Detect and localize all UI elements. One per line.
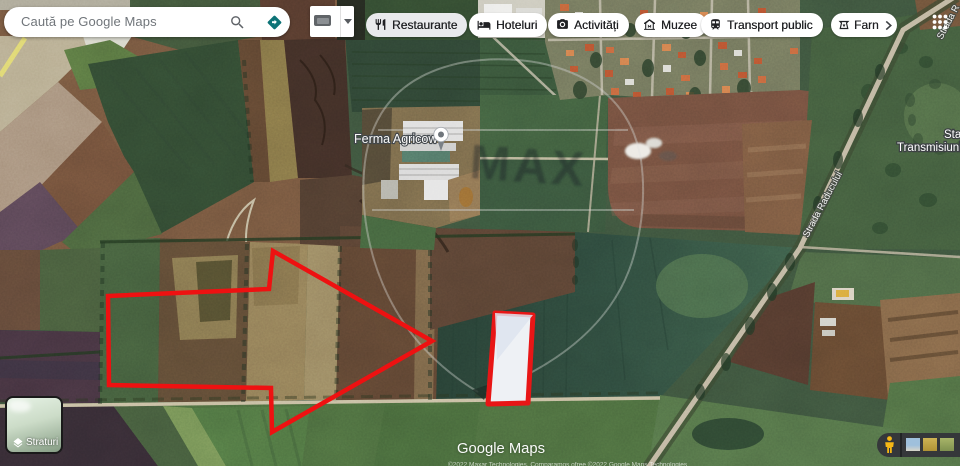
svg-text:Google Maps: Google Maps xyxy=(457,441,545,457)
svg-text:Sta: Sta xyxy=(944,129,960,141)
svg-text:Ferma Agricow: Ferma Agricow xyxy=(354,132,438,146)
svg-text:©2022 Maxar Technologies, Comp: ©2022 Maxar Technologies, Comparamos ofr… xyxy=(448,461,688,466)
svg-text:Transmisiuni: Transmisiuni xyxy=(897,142,960,154)
